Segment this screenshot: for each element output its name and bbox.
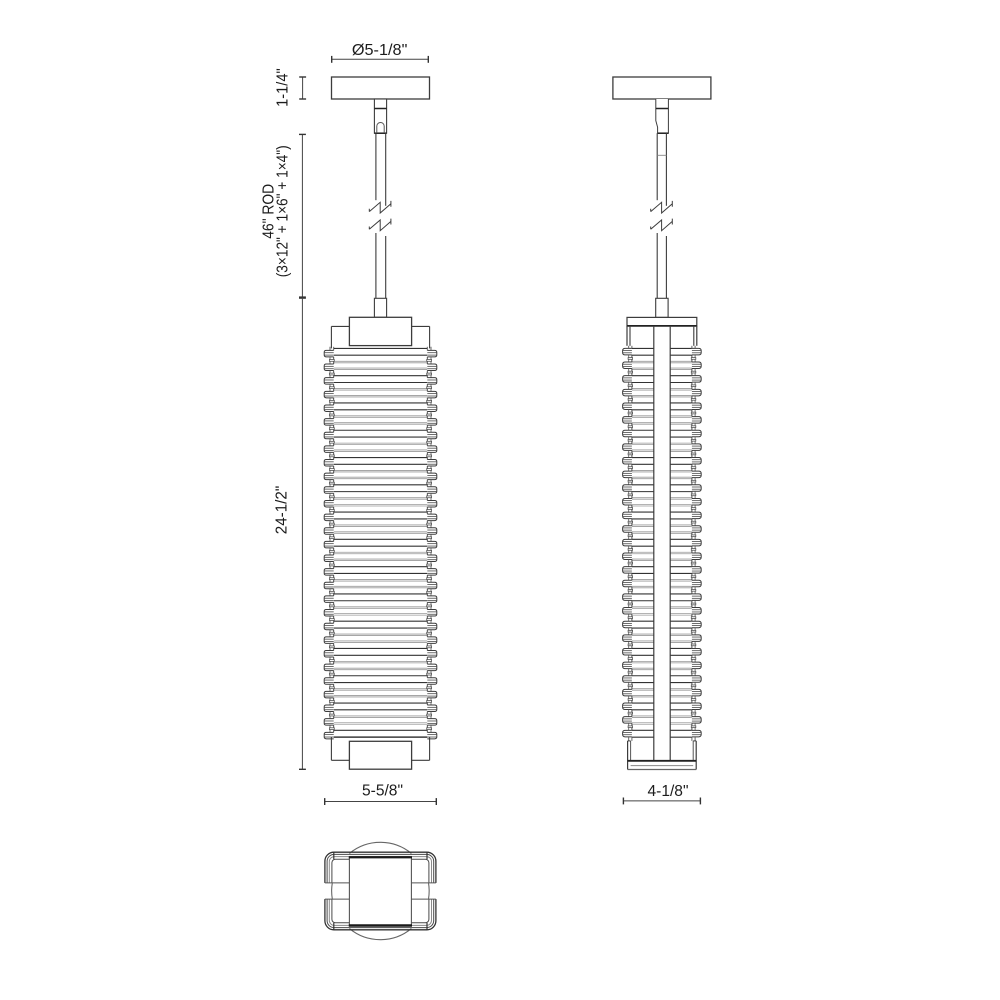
svg-text:1-1/4": 1-1/4": [275, 68, 292, 107]
svg-text:(3×12" + 1×6" + 1×4"): (3×12" + 1×6" + 1×4"): [275, 145, 292, 277]
svg-text:24-1/2": 24-1/2": [274, 486, 291, 535]
svg-text:Ø5-1/8": Ø5-1/8": [352, 42, 408, 59]
svg-text:5-5/8": 5-5/8": [362, 783, 403, 800]
svg-text:4-1/8": 4-1/8": [648, 783, 689, 800]
